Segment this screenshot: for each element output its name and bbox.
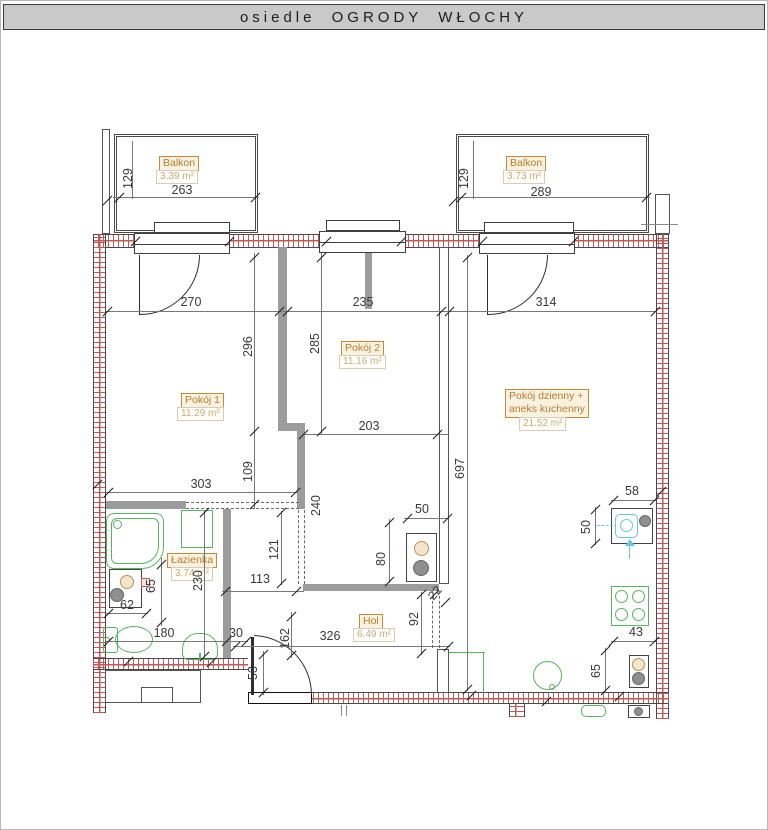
dim-basin-width: 62 (114, 598, 140, 612)
dim-line (303, 434, 449, 435)
room-label-balkon-right: Balkon (506, 156, 546, 171)
dim-balkon-right-depth: 129 (457, 161, 471, 197)
window-pokoj2 (319, 231, 406, 253)
dashed-wall-line (186, 502, 299, 503)
entry-niche-step (141, 687, 173, 703)
burner-icon (615, 608, 628, 621)
dim-washer-nook-height: 80 (374, 546, 388, 572)
dim-basin-zone-height: 65 (144, 573, 158, 599)
burner-icon (632, 608, 645, 621)
dim-line (341, 705, 342, 716)
dim-line (389, 519, 390, 583)
counter-line (483, 652, 484, 693)
dim-line (291, 612, 292, 658)
floor-plan-page: osiedle OGRODY WŁOCHY (0, 0, 768, 830)
dim-line (605, 648, 606, 692)
room-area-living: 21.52 m² (519, 417, 566, 431)
shower-drain-icon (113, 520, 122, 529)
room-label-hol: Hol (359, 614, 383, 629)
room-label-living: Pokój dzienny +aneks kuchenny (505, 389, 589, 418)
dim-line (456, 197, 650, 198)
dim-line (321, 253, 322, 435)
wall-hol-top (303, 584, 439, 591)
pillar-top-right (655, 194, 670, 234)
table-leg-icon (549, 684, 555, 690)
dashed-wall-line (439, 591, 440, 648)
pillar-hol (437, 649, 449, 693)
dim-line (421, 592, 422, 655)
dim-sink-depth: 50 (579, 514, 593, 540)
dim-line (467, 255, 468, 691)
dim-pokoj1-lower-width: 303 (183, 477, 219, 491)
dim-line (611, 641, 656, 642)
toilet-bowl (115, 626, 153, 653)
wall-living-left (439, 247, 449, 584)
dim-bathroom-width: 180 (149, 626, 179, 640)
wall-bottom-left (93, 658, 248, 670)
dashed-wall-line (432, 591, 433, 648)
wall-pokoj1-pokoj2 (278, 247, 287, 429)
window-sill-left (154, 222, 230, 233)
dim-balkon-left-width: 263 (164, 183, 200, 197)
dim-entry-offset: 162 (278, 624, 292, 654)
counter-line (449, 652, 485, 653)
dashed-wall-line (186, 508, 299, 509)
dim-line (106, 311, 656, 312)
dim-line (161, 558, 162, 626)
dim-line (132, 141, 133, 199)
room-area-balkon-right: 3.73 m² (503, 170, 545, 184)
wall-corridor-left (297, 431, 305, 509)
floor-plan: Balkon 3.39 m² Balkon 3.73 m² Pokój 1 11… (1, 1, 768, 830)
dim-line (281, 511, 282, 585)
wall-stub-top-left (102, 129, 110, 234)
room-label-pokoj2: Pokój 2 (341, 341, 384, 356)
dim-line (106, 613, 148, 614)
drain-arrow-line-icon (629, 544, 630, 559)
dim-line (204, 511, 205, 659)
dim-pokoj2-width: 235 (345, 295, 381, 309)
room-label-balkon-left: Balkon (159, 156, 199, 171)
dim-living-height: 697 (453, 451, 467, 487)
room-area-pokoj2: 11.16 m² (339, 355, 386, 369)
dim-sink-width: 58 (619, 484, 645, 498)
balcony-right (456, 134, 649, 233)
dim-stove-gap: 43 (623, 625, 649, 639)
burner-icon (615, 590, 628, 603)
water-line-icon (597, 525, 613, 526)
dim-line (346, 705, 347, 716)
dim-pokoj1-lower-height: 109 (241, 456, 255, 488)
dashed-wall-line (304, 510, 305, 584)
dim-line (595, 507, 596, 545)
wall-jog (278, 423, 305, 431)
dim-line (611, 500, 656, 501)
dim-corridor-height: 240 (309, 490, 323, 522)
fridge-icon-top (632, 658, 645, 671)
dim-living-width: 314 (528, 295, 564, 309)
balcony-door-pokoj1 (134, 233, 230, 254)
dim-pokoj1-width: 270 (173, 295, 209, 309)
window-sill-right (484, 222, 574, 233)
dim-fridge-width: 65 (589, 658, 603, 684)
dim-line (106, 492, 298, 493)
dim-bathroom-height: 230 (191, 565, 205, 597)
room-label-pokoj1: Pokój 1 (181, 393, 224, 408)
room-area-balkon-left: 3.39 m² (156, 170, 198, 184)
fridge-icon-bottom (632, 672, 645, 685)
washer-hol-drum-icon (414, 541, 429, 556)
room-area-pokoj1: 11.29 m² (177, 407, 224, 421)
wall-bathroom-top (106, 501, 186, 509)
burner-icon (632, 590, 645, 603)
dim-pokoj1-height: 296 (241, 329, 255, 365)
dim-hol-nook-height: 92 (407, 605, 421, 633)
dim-line (113, 197, 259, 198)
window-sill-middle (326, 220, 400, 231)
dim-corridor-width: 113 (245, 572, 275, 586)
dim-line (641, 224, 678, 225)
dim-tick (441, 598, 451, 608)
washing-machine-bath (181, 510, 213, 548)
kitchen-sink-drain-icon (620, 519, 633, 532)
washer-hol-motor-icon (413, 560, 429, 576)
neighbor-fixture-green (581, 705, 606, 717)
neighbor-appliance-icon (634, 707, 643, 716)
dim-line (233, 646, 450, 647)
wall-stub-below (509, 704, 525, 717)
dim-line (254, 253, 255, 509)
dim-line (473, 141, 474, 199)
kitchen-tap-icon (639, 515, 651, 527)
balcony-door-living (479, 233, 575, 254)
drain-arrow-head-icon (625, 539, 635, 546)
dim-pokoj2-lower-width: 203 (351, 419, 387, 433)
dim-pokoj2-height: 285 (308, 326, 322, 362)
dim-hol-width: 326 (313, 629, 347, 643)
washbasin-bowl-icon (120, 575, 134, 589)
dashed-wall-line (298, 510, 299, 584)
dim-line (222, 591, 304, 592)
dim-entry-door-width: 53 (246, 660, 260, 686)
dim-line (404, 518, 448, 519)
dim-washer-nook-width: 50 (409, 502, 435, 516)
dim-wardrobe-height: 121 (267, 534, 281, 566)
room-area-hol: 6.49 m² (353, 628, 395, 642)
dim-line (263, 651, 264, 695)
round-table (533, 661, 562, 690)
